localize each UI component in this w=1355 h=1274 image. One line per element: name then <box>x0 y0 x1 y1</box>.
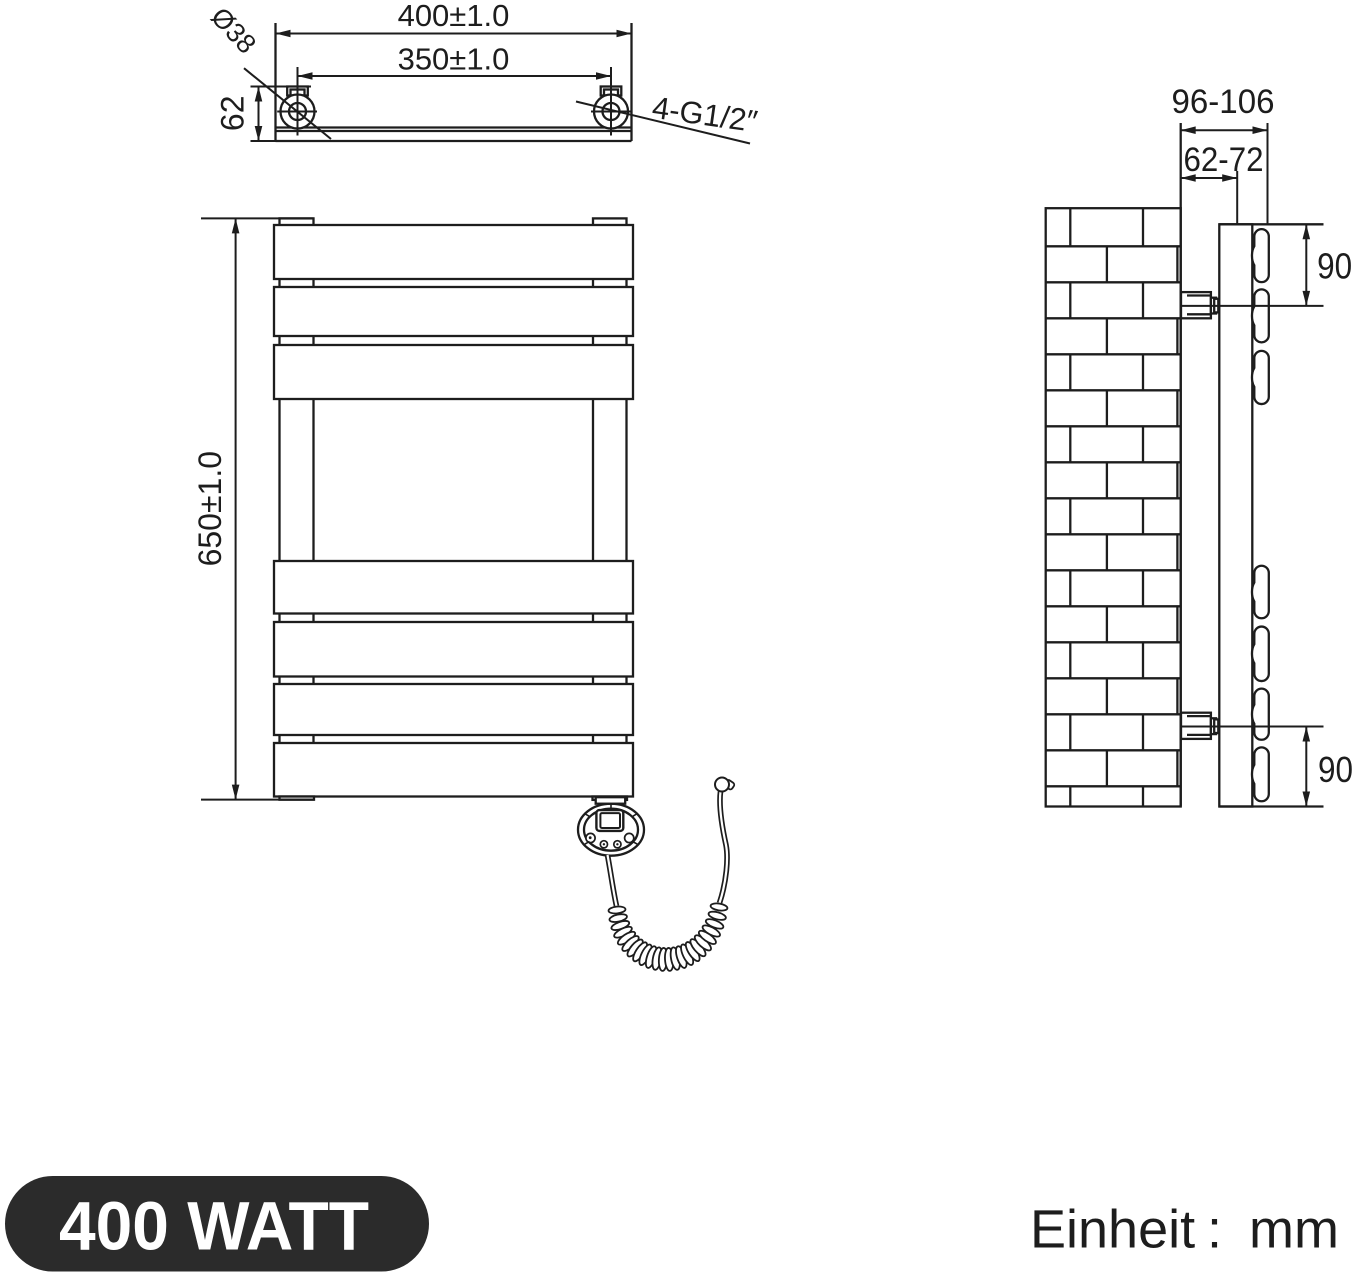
svg-text:62-72: 62-72 <box>1184 141 1264 179</box>
svg-text:350±1.0: 350±1.0 <box>398 42 510 77</box>
svg-text:Einheit:mm: Einheit:mm <box>1030 1200 1339 1260</box>
svg-text:650±1.0: 650±1.0 <box>192 451 228 566</box>
svg-text:400 WATT: 400 WATT <box>59 1188 369 1265</box>
svg-text:96-106: 96-106 <box>1172 83 1275 121</box>
svg-text:62: 62 <box>215 96 251 132</box>
svg-text:400±1.0: 400±1.0 <box>398 0 510 33</box>
svg-text:90: 90 <box>1318 749 1353 790</box>
svg-text:90: 90 <box>1317 246 1352 287</box>
